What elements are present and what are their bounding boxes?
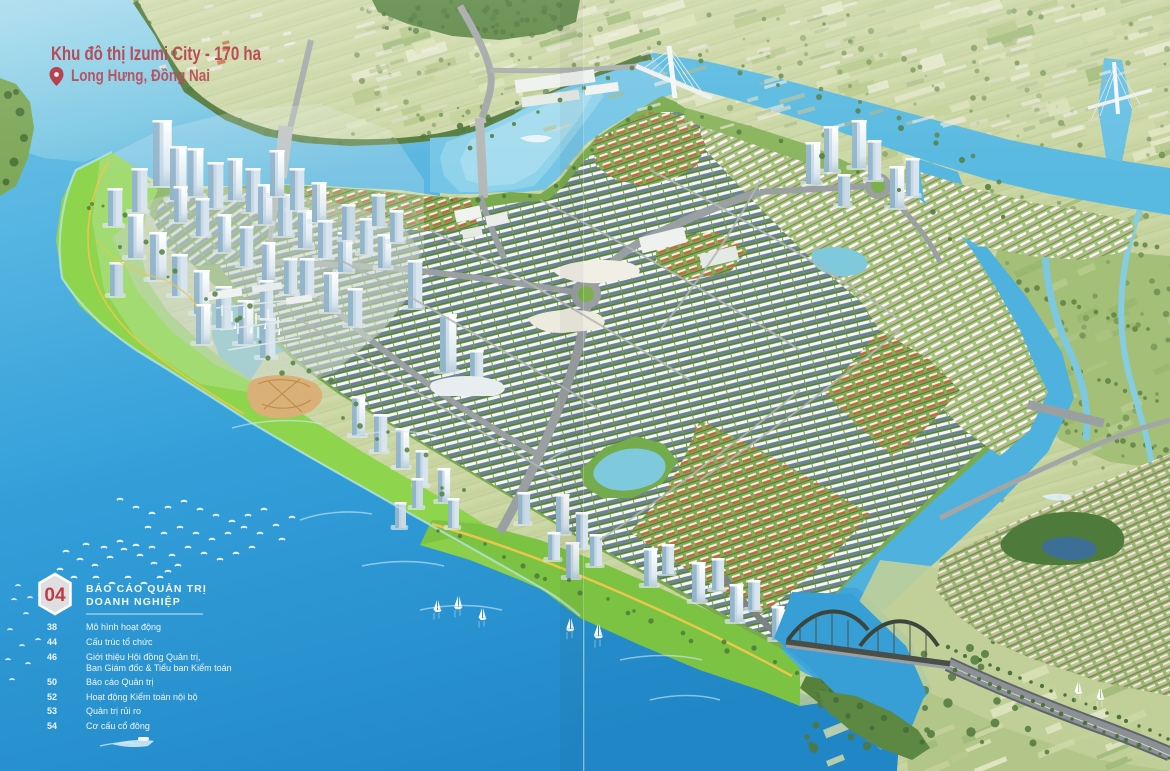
svg-text:53: 53 [47,706,57,716]
svg-text:Hoạt động Kiểm toán nội bộ: Hoạt động Kiểm toán nội bộ [86,692,198,702]
svg-text:Giới thiệu Hội đồng Quản trị,: Giới thiệu Hội đồng Quản trị, [86,652,200,662]
svg-text:Mô hình hoạt động: Mô hình hoạt động [86,622,161,632]
svg-text:Quản trị rủi ro: Quản trị rủi ro [86,706,141,716]
svg-text:50: 50 [47,677,57,687]
svg-text:46: 46 [47,652,57,662]
svg-text:52: 52 [47,692,57,702]
svg-text:Cơ cấu cổ đông: Cơ cấu cổ đông [86,721,150,731]
svg-text:Cấu trúc tổ chức: Cấu trúc tổ chức [86,637,153,647]
svg-text:Ban Giám đốc & Tiểu ban Kiểm t: Ban Giám đốc & Tiểu ban Kiểm toán [86,663,232,673]
svg-text:BÁO CÁO QUẢN TRỊ: BÁO CÁO QUẢN TRỊ [86,582,207,595]
svg-text:44: 44 [47,637,57,647]
svg-text:38: 38 [47,622,57,632]
svg-text:54: 54 [47,721,57,731]
svg-text:Báo cáo Quản trị: Báo cáo Quản trị [86,677,154,687]
svg-text:DOANH NGHIỆP: DOANH NGHIỆP [86,595,181,608]
svg-text:04: 04 [44,585,66,606]
